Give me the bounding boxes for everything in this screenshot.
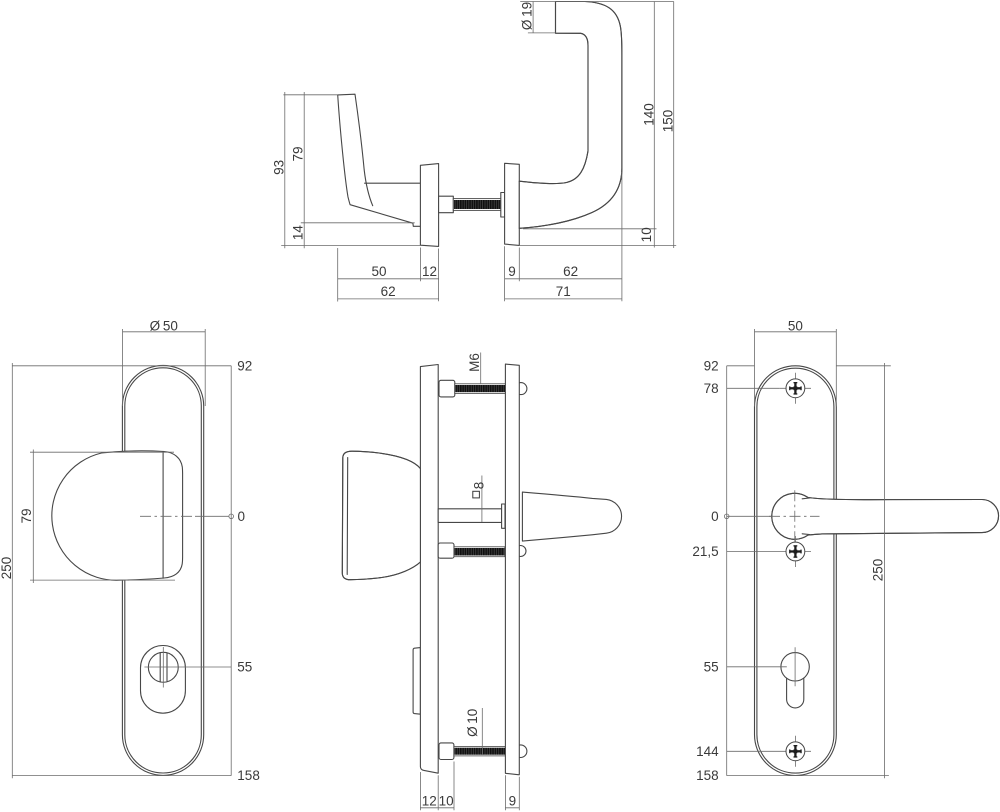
svg-text:14: 14 xyxy=(291,225,306,241)
svg-text:140: 140 xyxy=(641,103,656,126)
svg-text:Ø 10: Ø 10 xyxy=(465,709,480,737)
svg-text:M6: M6 xyxy=(467,353,482,372)
svg-text:12: 12 xyxy=(422,264,437,279)
svg-text:0: 0 xyxy=(238,509,246,524)
svg-text:250: 250 xyxy=(0,557,14,580)
svg-text:62: 62 xyxy=(563,264,578,279)
svg-text:71: 71 xyxy=(556,284,571,299)
svg-text:10: 10 xyxy=(639,227,654,242)
svg-text:250: 250 xyxy=(871,559,886,582)
svg-text:9: 9 xyxy=(509,793,517,808)
svg-text:Ø 50: Ø 50 xyxy=(150,319,178,334)
svg-text:144: 144 xyxy=(696,744,719,759)
svg-text:55: 55 xyxy=(237,660,252,675)
svg-text:79: 79 xyxy=(19,508,34,523)
svg-text:92: 92 xyxy=(704,358,719,373)
svg-text:9: 9 xyxy=(508,264,516,279)
svg-text:0: 0 xyxy=(711,509,719,524)
svg-text:79: 79 xyxy=(291,146,306,161)
svg-text:158: 158 xyxy=(237,768,260,783)
svg-text:Ø 19: Ø 19 xyxy=(520,2,535,30)
svg-text:12: 12 xyxy=(422,793,437,808)
svg-text:8: 8 xyxy=(472,482,487,490)
svg-text:62: 62 xyxy=(381,284,396,299)
svg-text:158: 158 xyxy=(696,768,719,783)
svg-text:10: 10 xyxy=(439,793,454,808)
svg-text:50: 50 xyxy=(788,319,803,334)
svg-text:50: 50 xyxy=(371,264,386,279)
svg-text:55: 55 xyxy=(704,659,719,674)
svg-text:21,5: 21,5 xyxy=(692,544,718,559)
svg-text:93: 93 xyxy=(271,160,286,175)
svg-text:92: 92 xyxy=(237,358,252,373)
svg-text:78: 78 xyxy=(704,381,719,396)
svg-text:150: 150 xyxy=(660,110,675,133)
